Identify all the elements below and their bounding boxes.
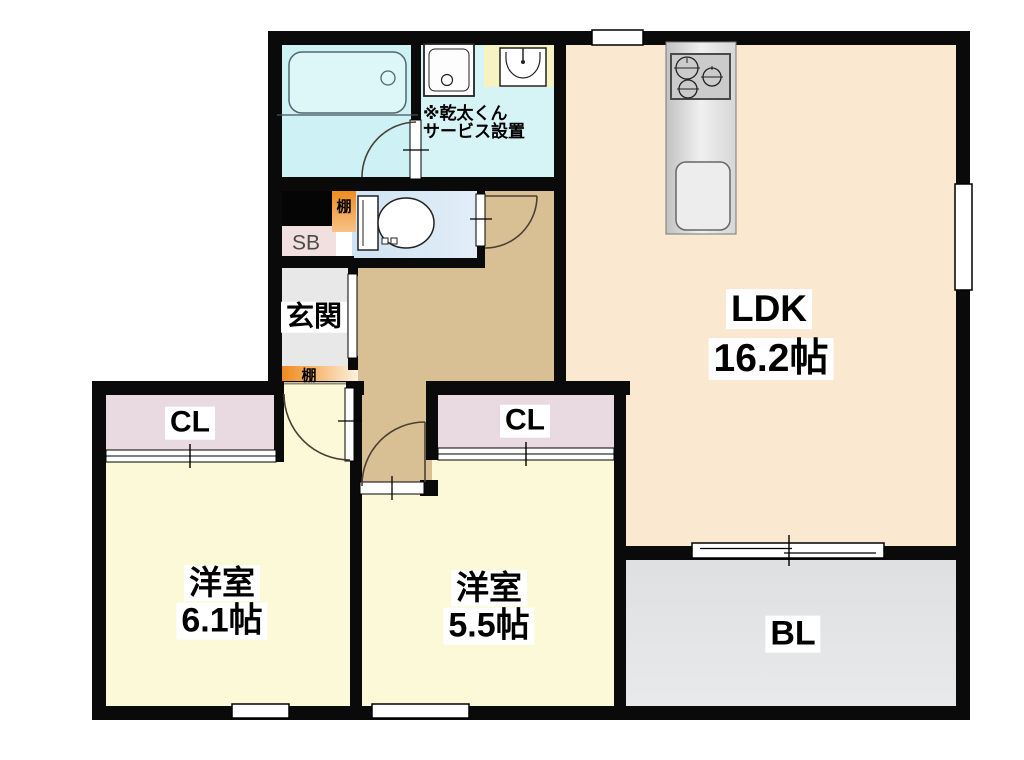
- ldk-label: LDK: [726, 289, 812, 329]
- closet-left-label: CL: [165, 407, 215, 440]
- hallway-floor: [352, 258, 564, 390]
- hallway-ext-floor: [360, 385, 432, 492]
- window-bedroom-left: [232, 704, 289, 718]
- washer-pan-icon: [424, 44, 474, 96]
- vanity-sink-icon: [500, 48, 546, 86]
- window-bedroom-center: [372, 704, 469, 718]
- shelf-by-toilet-label: 棚: [336, 199, 351, 214]
- entrance-step-opening: [348, 274, 357, 358]
- ldk-size-label: 16.2帖: [709, 338, 834, 380]
- bathtub-icon: [277, 52, 418, 115]
- shelf-by-entrance-label: 棚: [301, 368, 316, 383]
- window-right: [955, 184, 972, 290]
- bedroom-left-label: 洋室: [184, 565, 260, 601]
- bedroom-center-size-label: 5.5帖: [443, 608, 534, 645]
- floorplan-drawing: [0, 0, 1024, 760]
- floorplan-page: LDK 16.2帖 洋室 6.1帖 洋室 5.5帖 BL CL CL 玄関 SB…: [0, 0, 1024, 760]
- kitchen-counter: [666, 42, 736, 234]
- bedroom-center-label: 洋室: [451, 570, 527, 606]
- kitchen-sink-icon: [676, 162, 730, 230]
- closet-center-label: CL: [500, 405, 550, 438]
- stove-icon: [671, 54, 730, 99]
- entrance-label: 玄関: [281, 302, 347, 333]
- window-top: [592, 30, 643, 45]
- toilet-icon: [358, 196, 434, 250]
- annotation-line2: サービス設置: [423, 117, 525, 142]
- shoe-box-label: SB: [292, 232, 320, 253]
- balcony-label: BL: [765, 616, 820, 653]
- bedroom-left-size-label: 6.1帖: [176, 603, 267, 640]
